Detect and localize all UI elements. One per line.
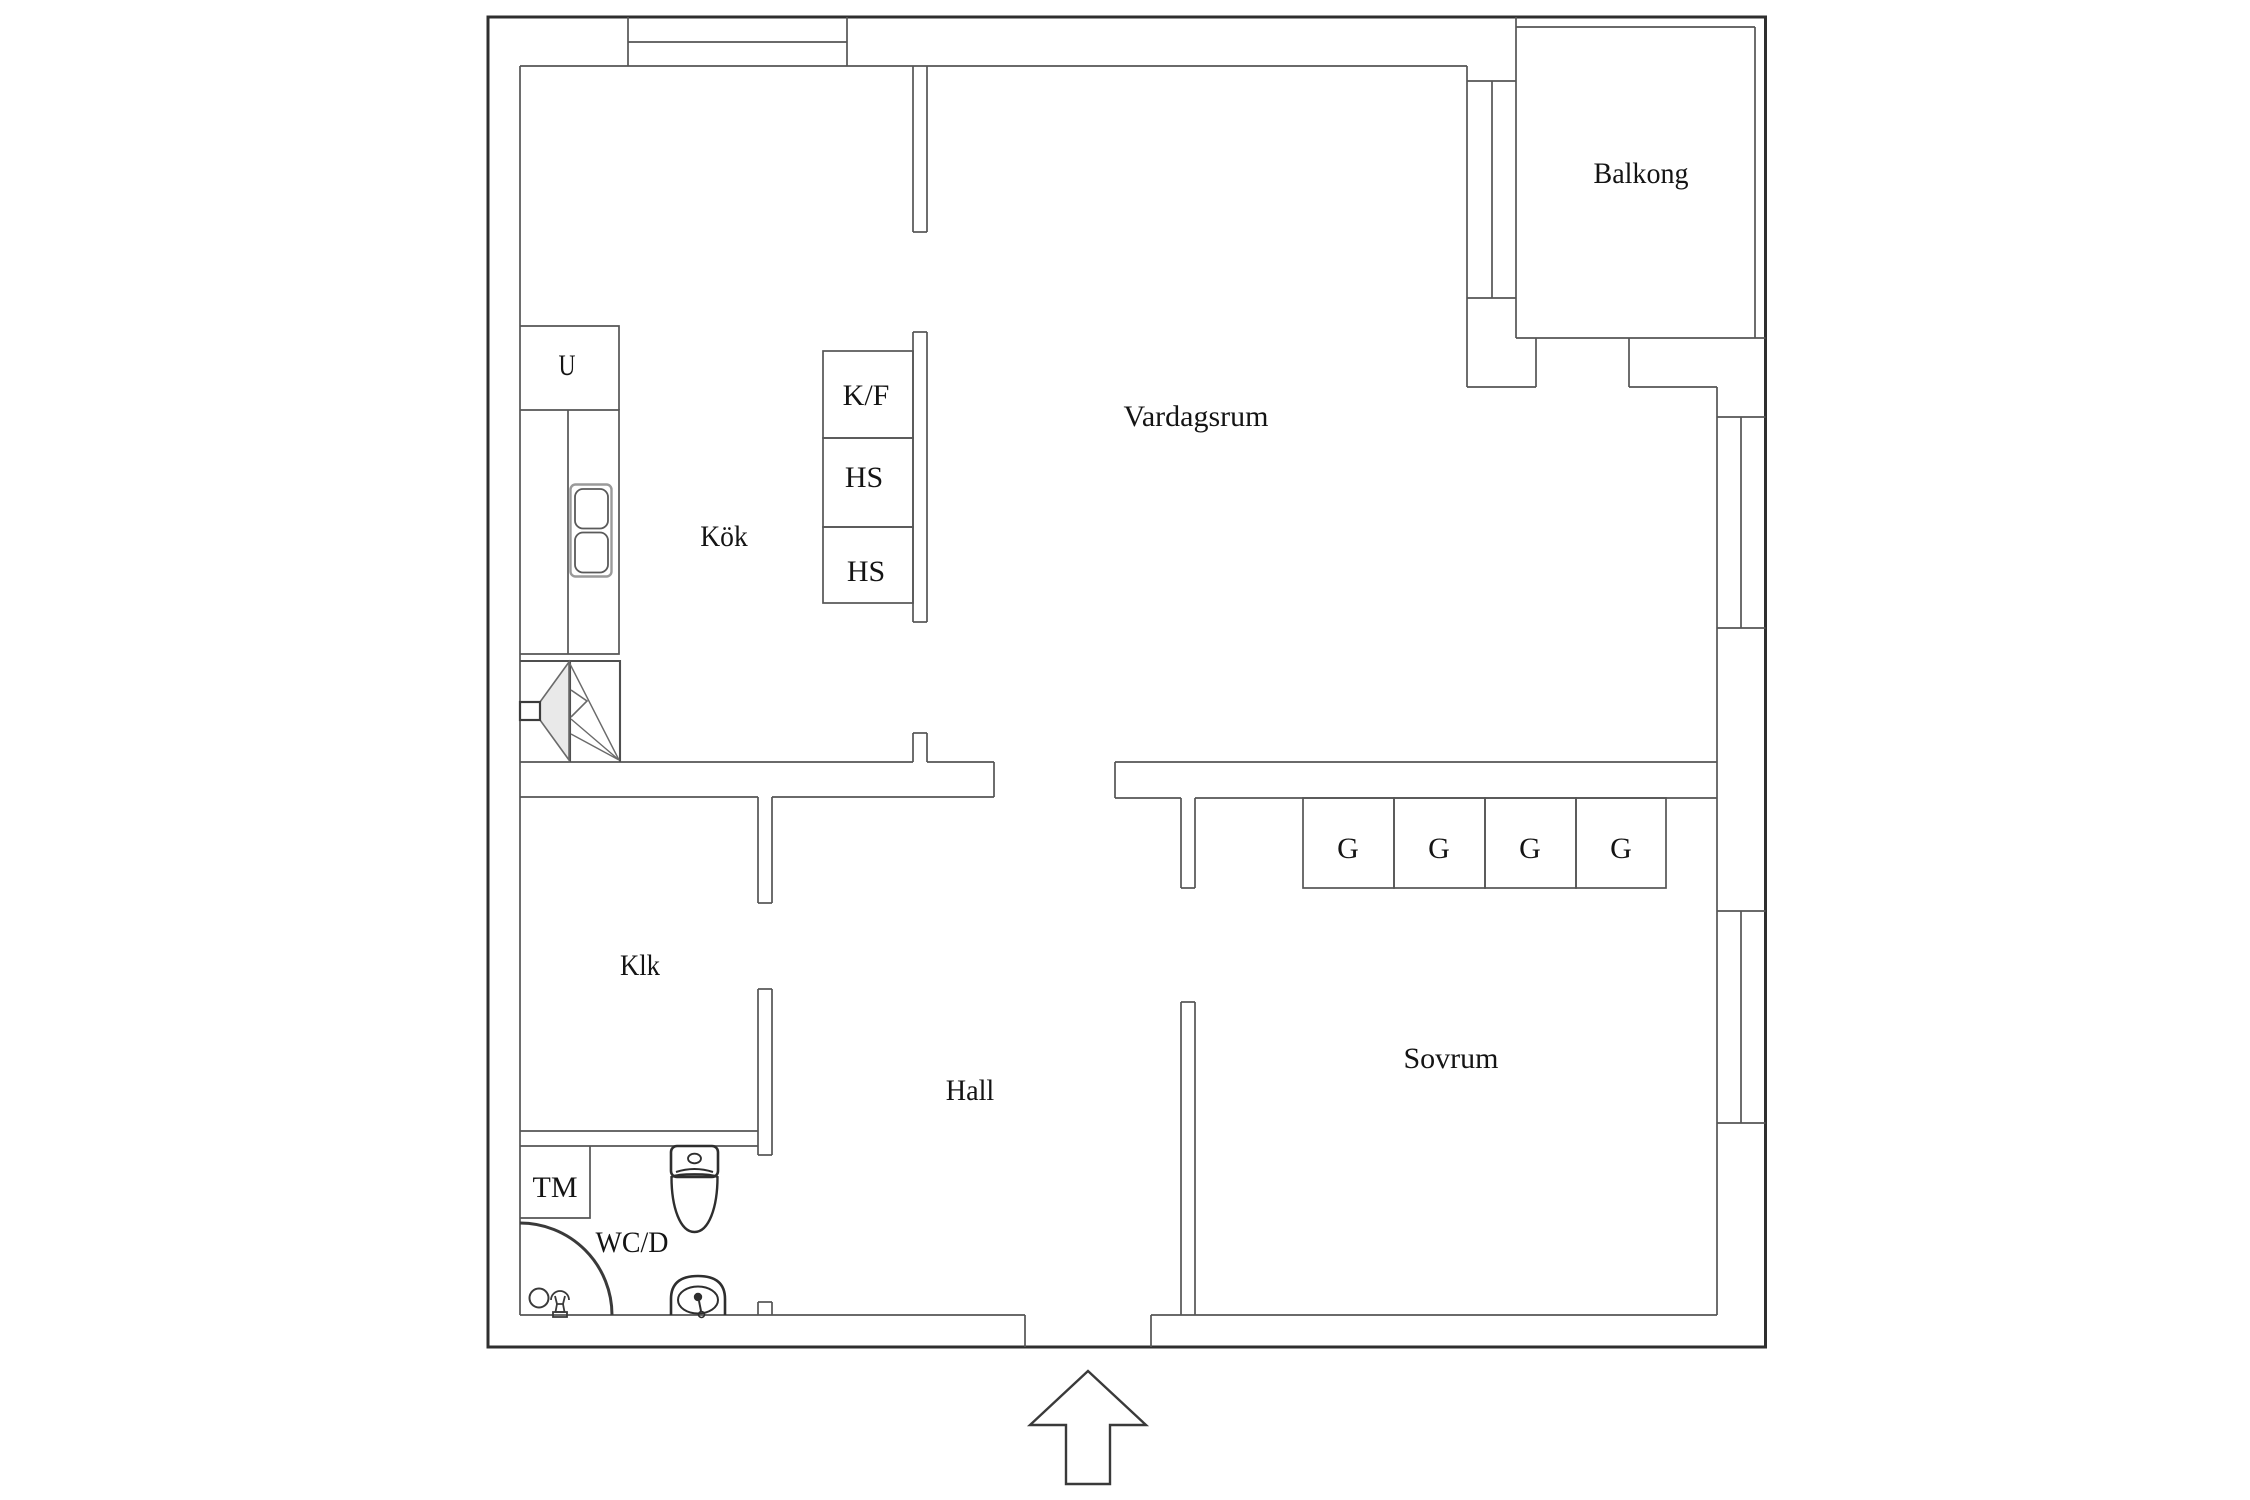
svg-text:Sovrum: Sovrum: [1403, 1042, 1498, 1075]
svg-text:Kök: Kök: [700, 520, 748, 553]
svg-text:TM: TM: [533, 1171, 578, 1204]
svg-text:WC/D: WC/D: [596, 1226, 669, 1259]
svg-text:Klk: Klk: [620, 949, 660, 982]
svg-text:HS: HS: [845, 461, 883, 494]
svg-text:G: G: [1610, 832, 1632, 865]
svg-text:HS: HS: [847, 555, 885, 588]
svg-text:Vardagsrum: Vardagsrum: [1124, 400, 1269, 433]
svg-text:G: G: [1428, 832, 1450, 865]
svg-text:Balkong: Balkong: [1594, 157, 1689, 190]
svg-text:U: U: [559, 349, 576, 382]
svg-text:K/F: K/F: [843, 379, 890, 412]
svg-text:Hall: Hall: [946, 1074, 995, 1107]
svg-text:G: G: [1519, 832, 1541, 865]
svg-text:G: G: [1337, 832, 1359, 865]
